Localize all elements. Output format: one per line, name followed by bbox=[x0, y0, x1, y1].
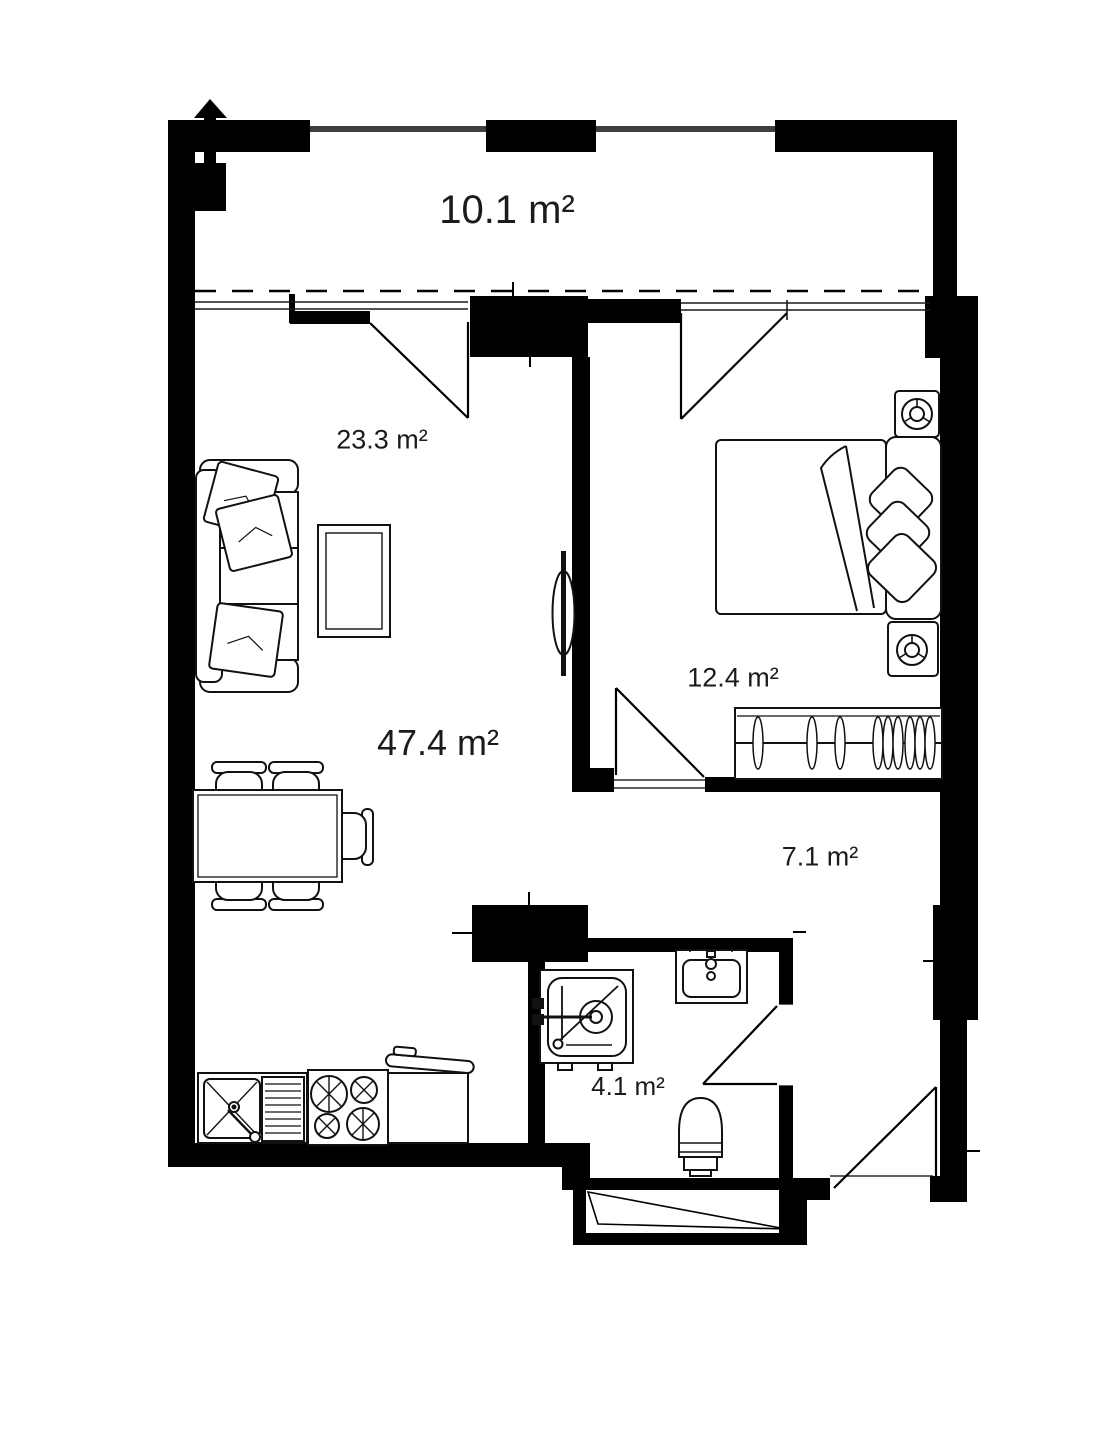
floor-plan-canvas: 10.1 m² 23.3 m² 47.4 m² 12.4 m² 7.1 m² 4… bbox=[0, 0, 1113, 1440]
wall-top-b bbox=[486, 120, 596, 152]
nightstand-bottom bbox=[888, 622, 938, 676]
wall-left bbox=[168, 120, 195, 1167]
toilet bbox=[679, 1098, 722, 1176]
north-arrow-shaft bbox=[204, 114, 216, 168]
room-area-label-living-total: 47.4 m² bbox=[377, 725, 499, 761]
room-area-label-bedroom: 12.4 m² bbox=[687, 665, 779, 692]
wall-bedroom-top bbox=[588, 299, 681, 323]
balcony-column bbox=[195, 163, 226, 211]
bedroom-door-swing bbox=[616, 688, 704, 777]
wall-right-pillar bbox=[933, 905, 978, 1020]
sofa-pillow bbox=[209, 603, 284, 678]
wall-balcony-pier bbox=[470, 296, 588, 357]
wall-top-a bbox=[168, 120, 310, 152]
kitchen bbox=[198, 1046, 475, 1145]
railing-left bbox=[310, 126, 486, 132]
wall-living-bedroom bbox=[572, 357, 590, 775]
bathroom-door-jambs bbox=[779, 1004, 793, 1086]
tv-screen-bar bbox=[561, 551, 566, 676]
bedroom-door-threshold bbox=[613, 780, 706, 788]
bedroom-balcony-door-swing bbox=[681, 313, 787, 419]
bin-lid-handle bbox=[394, 1046, 417, 1056]
wall-bottom bbox=[168, 1143, 590, 1167]
bathroom-door-swing bbox=[703, 1006, 777, 1084]
wall-parapet bbox=[290, 311, 370, 324]
wardrobe bbox=[735, 708, 942, 779]
window-living-balcony bbox=[195, 302, 468, 309]
wall-hall-bottom bbox=[779, 1178, 830, 1200]
shaft-symbol bbox=[588, 1192, 786, 1229]
washer-valve bbox=[533, 1015, 543, 1024]
room-area-label-balcony: 10.1 m² bbox=[439, 190, 575, 230]
wall-junction-topright bbox=[925, 296, 978, 358]
sofa-pillow bbox=[215, 494, 293, 572]
wall-bedroom-door-foot bbox=[572, 768, 614, 792]
bin-lid bbox=[385, 1054, 474, 1074]
wall-balcony-right bbox=[933, 145, 957, 305]
living-balcony-door-swing bbox=[370, 322, 468, 418]
entrance-door-swing bbox=[834, 1087, 936, 1188]
bedroom-furniture bbox=[716, 391, 942, 779]
trash-bin bbox=[385, 1046, 474, 1143]
room-area-label-living-area: 23.3 m² bbox=[336, 427, 428, 454]
room-area-label-hallway: 7.1 m² bbox=[782, 844, 859, 871]
shaft-wall-bottom bbox=[573, 1233, 807, 1245]
stove bbox=[308, 1070, 388, 1145]
wall-right-lower bbox=[940, 1020, 967, 1200]
wall-bathroom-pier bbox=[472, 905, 588, 962]
washer-valve bbox=[533, 999, 543, 1008]
dining-table bbox=[193, 790, 342, 882]
nightstand-top bbox=[895, 391, 939, 437]
tv bbox=[553, 551, 575, 676]
room-area-label-bathroom: 4.1 m² bbox=[591, 1073, 665, 1099]
window-bedroom-balcony bbox=[681, 303, 930, 310]
railing-right bbox=[596, 126, 775, 132]
kitchen-sink bbox=[198, 1073, 307, 1143]
drainboard bbox=[262, 1077, 304, 1141]
bathroom-fixtures bbox=[533, 947, 747, 1176]
wall-top-c bbox=[775, 120, 957, 152]
wall-right-upper bbox=[940, 358, 978, 905]
wall-entrance-right bbox=[930, 1176, 967, 1202]
coffee-table bbox=[318, 525, 390, 637]
dining-set bbox=[193, 762, 373, 910]
wall-bathroom-right-upper bbox=[779, 938, 793, 1004]
washing-machine bbox=[533, 970, 633, 1070]
wall-bathroom-right-lower bbox=[779, 1086, 793, 1242]
bathroom-sink bbox=[676, 947, 747, 1003]
shaft-wall-top bbox=[573, 1178, 807, 1190]
sofa bbox=[196, 460, 298, 692]
